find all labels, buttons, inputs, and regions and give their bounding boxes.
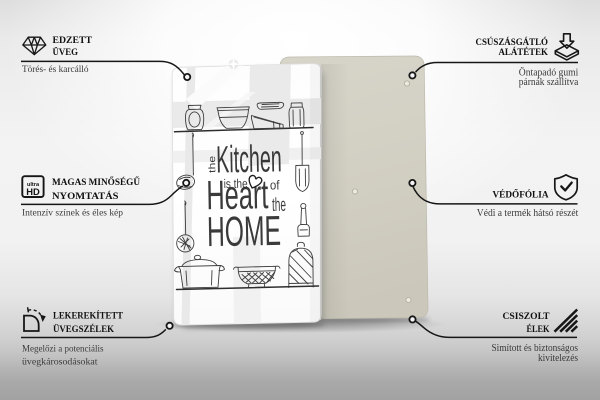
svg-text:ÜVEG: ÜVEG bbox=[53, 45, 79, 58]
svg-text:Megelőzi a potenciális: Megelőzi a potenciális bbox=[22, 344, 104, 354]
svg-text:ÜVEGSZÉLEK: ÜVEGSZÉLEK bbox=[53, 322, 114, 335]
svg-text:Intenzív színek és éles kép: Intenzív színek és éles kép bbox=[22, 209, 123, 219]
svg-text:ALÁTÉTEK: ALÁTÉTEK bbox=[499, 46, 549, 58]
svg-text:üvegkárosodásokat: üvegkárosodásokat bbox=[22, 357, 98, 367]
svg-text:of: of bbox=[270, 177, 280, 192]
svg-text:Törés- és karcálló: Törés- és karcálló bbox=[22, 65, 89, 75]
svg-text:HD: HD bbox=[26, 186, 40, 197]
svg-text:Védi a termék hátsó részét: Védi a termék hátsó részét bbox=[477, 208, 579, 219]
svg-text:MAGAS MINŐSÉGŰ: MAGAS MINŐSÉGŰ bbox=[52, 176, 140, 188]
svg-text:HOME: HOME bbox=[207, 207, 282, 255]
svg-text:párnák szállítva: párnák szállítva bbox=[519, 77, 579, 88]
svg-text:LEKEREKÍTETT: LEKEREKÍTETT bbox=[53, 310, 124, 322]
svg-text:CSISZOLT: CSISZOLT bbox=[503, 311, 551, 322]
svg-text:VÉDŐFÓLIA: VÉDŐFÓLIA bbox=[493, 188, 549, 200]
svg-text:NYOMTATÁS: NYOMTATÁS bbox=[52, 190, 119, 202]
svg-text:EDZETT: EDZETT bbox=[53, 35, 93, 46]
svg-text:kivitelezés: kivitelezés bbox=[538, 353, 578, 364]
svg-text:ÉLEK: ÉLEK bbox=[527, 323, 550, 335]
